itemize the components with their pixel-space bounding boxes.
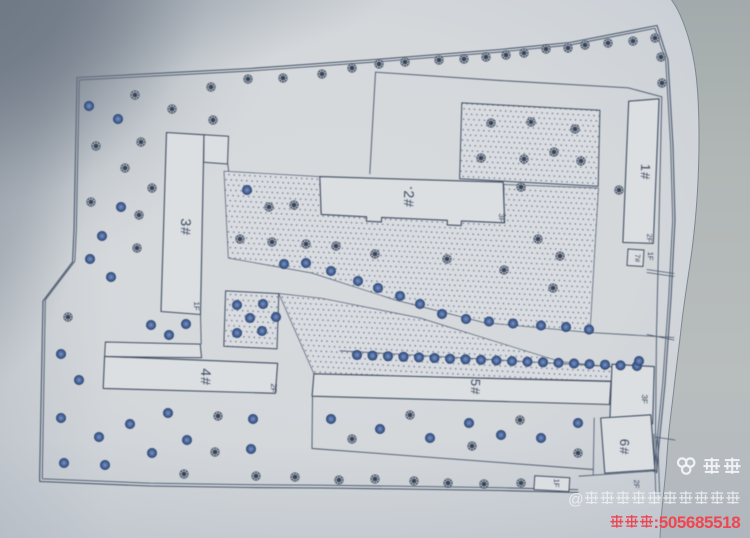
svg-text:1#: 1# [638,164,654,181]
svg-text:3#: 3# [178,218,195,236]
svg-text:5#: 5# [468,379,484,396]
svg-text:1F: 1F [192,301,201,311]
svg-text:2F: 2F [632,480,641,489]
svg-text:1F: 1F [646,252,655,261]
svg-text:7#: 7# [633,254,642,263]
svg-text:3F: 3F [640,394,649,404]
svg-text::505685518: :505685518 [654,513,741,532]
svg-text:2F: 2F [269,383,278,393]
svg-text:4#: 4# [198,368,215,386]
svg-text:1F: 1F [552,479,561,488]
svg-text:2F: 2F [645,234,654,243]
svg-text:2#: 2# [401,190,418,208]
svg-text:@: @ [568,492,584,509]
svg-text:6#: 6# [617,439,633,456]
svg-text:3F: 3F [497,213,506,223]
